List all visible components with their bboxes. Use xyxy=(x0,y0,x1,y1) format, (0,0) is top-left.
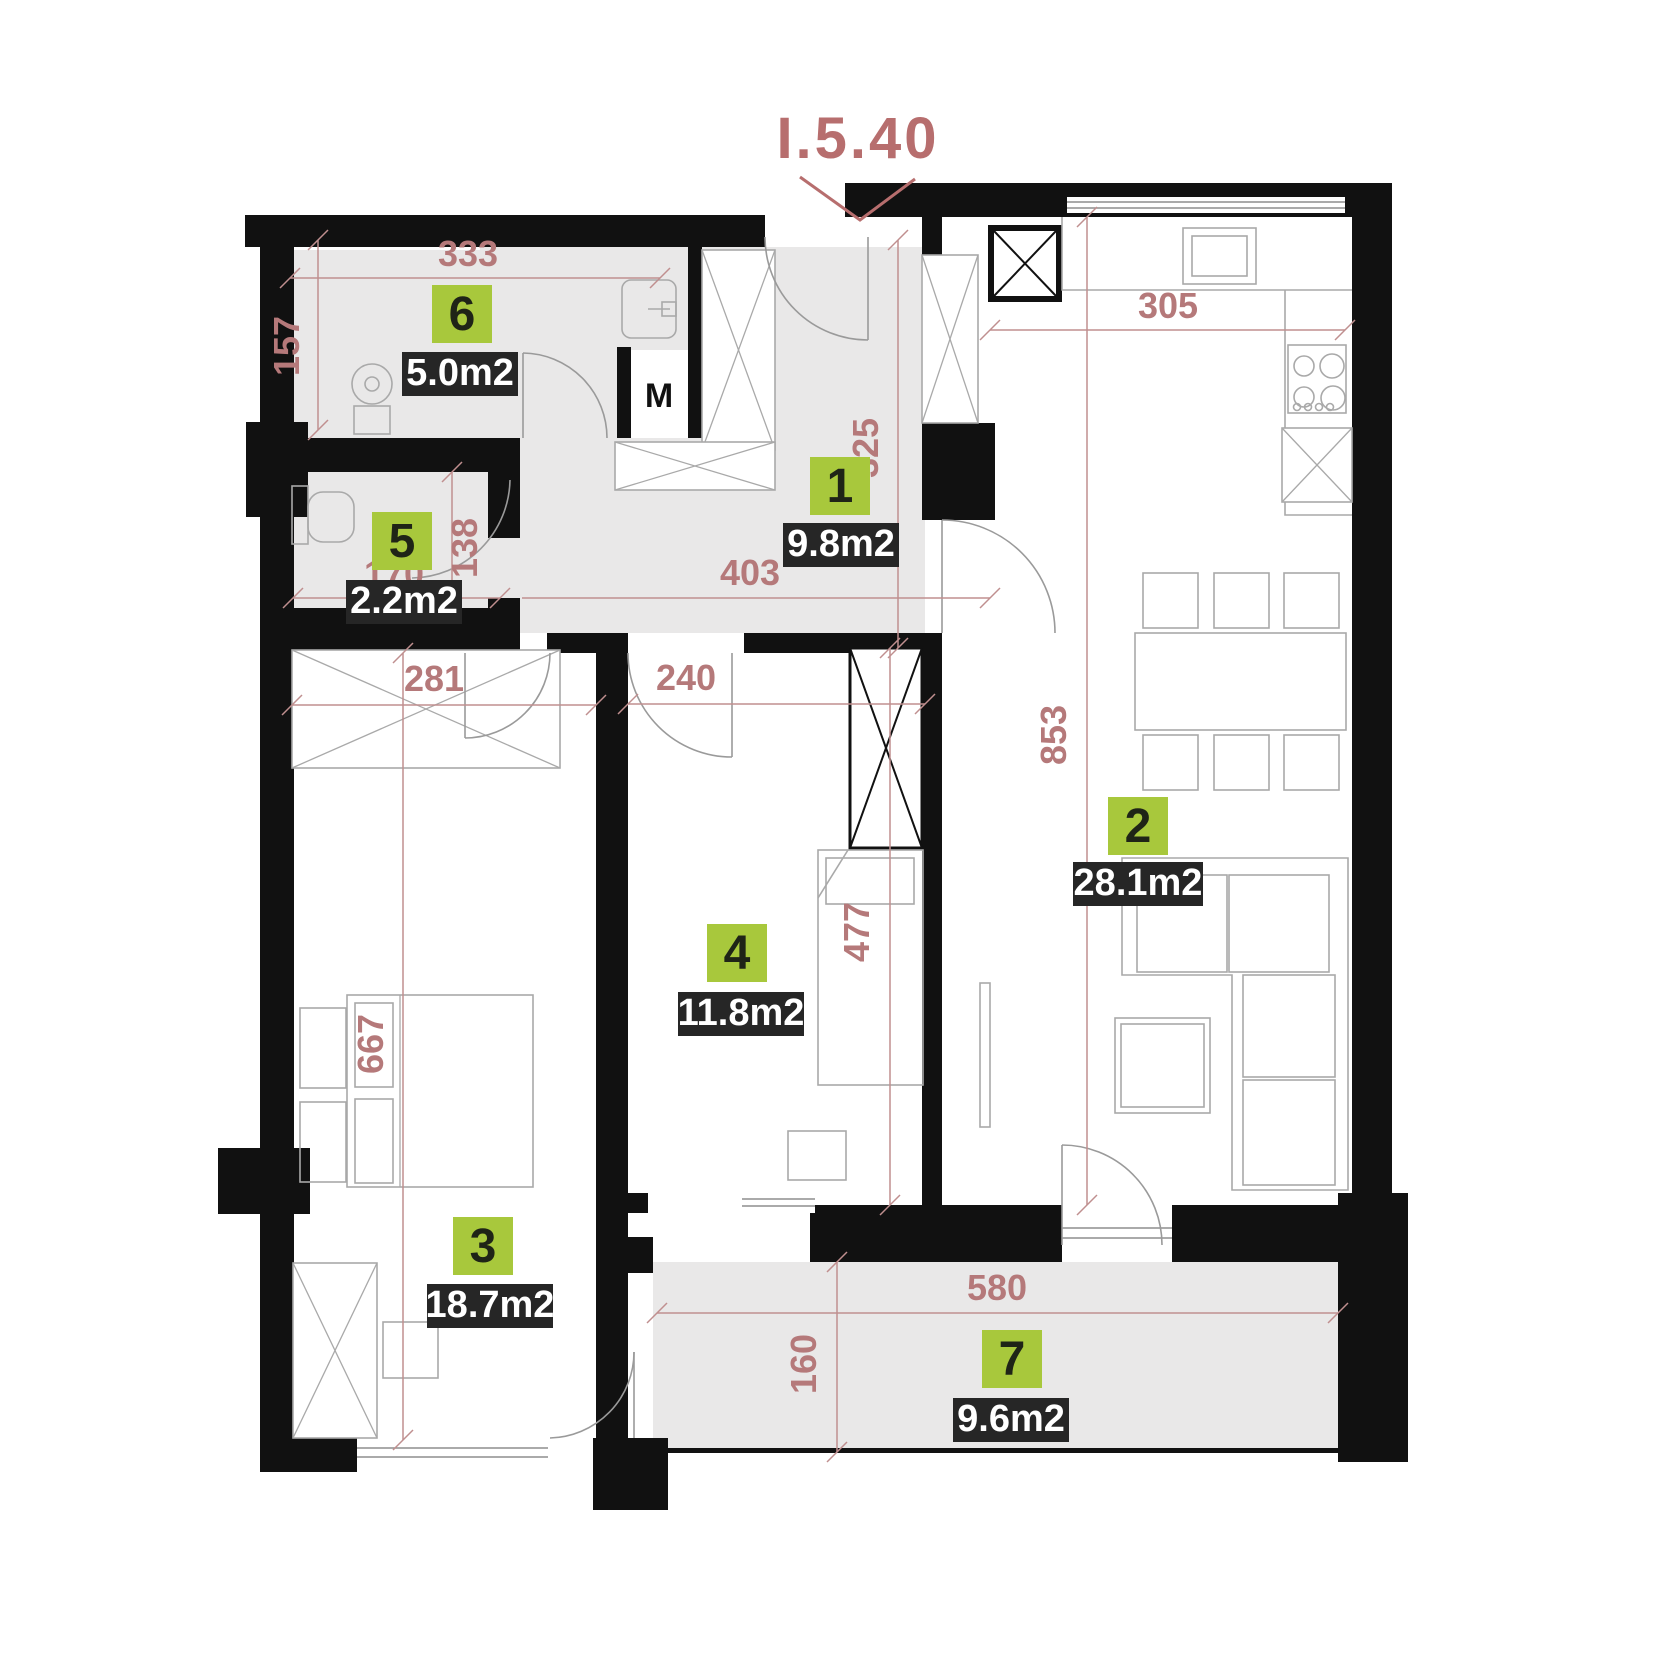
room-number: 1 xyxy=(827,460,854,513)
chair xyxy=(1284,735,1339,790)
utility-room-label: M xyxy=(645,377,673,415)
sofa-cushion xyxy=(1243,975,1335,1077)
wall xyxy=(922,217,942,257)
room-2-door-swing xyxy=(942,520,1055,633)
wall xyxy=(260,438,520,472)
room-3-badge: 3 18.7m2 xyxy=(426,1217,555,1328)
wall xyxy=(260,215,294,1472)
bed-single xyxy=(818,850,923,1085)
bed-pillow xyxy=(355,1099,393,1183)
wall xyxy=(628,1193,648,1213)
room-4-badge: 4 11.8m2 xyxy=(678,924,805,1036)
dimension-label: 281 xyxy=(404,658,464,699)
wall xyxy=(688,215,702,438)
room-number: 7 xyxy=(999,1333,1026,1386)
kitchen-sink xyxy=(1192,236,1247,276)
chair xyxy=(1143,573,1198,628)
sofa-cushion xyxy=(1229,875,1329,972)
cooktop-knob xyxy=(1316,404,1323,411)
dimension-label: 157 xyxy=(266,316,307,376)
wall xyxy=(922,633,942,1205)
window xyxy=(742,1193,815,1213)
cooktop-burner xyxy=(1320,354,1344,378)
wall xyxy=(1352,183,1392,1193)
wall xyxy=(488,472,520,538)
wall-pillar xyxy=(218,1148,310,1214)
room-area: 11.8m2 xyxy=(678,992,805,1034)
wall xyxy=(596,633,628,1438)
wall xyxy=(260,1438,358,1472)
dimension-label: 160 xyxy=(783,1334,824,1394)
dimension-label: 403 xyxy=(720,552,780,593)
coffee-table xyxy=(1121,1024,1204,1107)
wall-pillar xyxy=(922,423,995,520)
room-area: 9.6m2 xyxy=(957,1398,1065,1440)
wall xyxy=(810,1205,1062,1262)
chair xyxy=(1214,735,1269,790)
room-area: 2.2m2 xyxy=(350,580,458,622)
dimension-label: 667 xyxy=(350,1014,391,1074)
room-number: 6 xyxy=(449,288,476,341)
wall-pillar xyxy=(1338,1193,1408,1462)
desk xyxy=(383,1322,438,1378)
nightstand xyxy=(300,1008,346,1088)
sofa-cushion xyxy=(1243,1080,1335,1185)
wall xyxy=(617,347,631,438)
dimension-label: 853 xyxy=(1033,705,1074,765)
wall xyxy=(620,1237,653,1273)
dimension-label: 305 xyxy=(1138,285,1198,326)
chair xyxy=(1284,573,1339,628)
radiator xyxy=(980,983,990,1127)
room-area: 5.0m2 xyxy=(406,352,514,394)
dimension-label: 240 xyxy=(656,657,716,698)
room-number: 4 xyxy=(724,927,751,980)
wall xyxy=(1172,1205,1348,1262)
floors xyxy=(292,247,1338,1452)
room-number: 5 xyxy=(389,515,416,568)
window xyxy=(1067,197,1345,213)
room-area: 9.8m2 xyxy=(787,523,895,565)
unit-number: I.5.40 xyxy=(776,106,939,171)
balcony-edge xyxy=(653,1448,1338,1453)
dimension-label: 333 xyxy=(438,233,498,274)
cooktop-burner xyxy=(1294,356,1314,376)
dimension-label: 580 xyxy=(967,1267,1027,1308)
dining-table xyxy=(1135,633,1346,730)
dimension-label: 477 xyxy=(836,902,877,962)
room-number: 2 xyxy=(1125,800,1152,853)
room-area: 28.1m2 xyxy=(1074,862,1203,904)
chair xyxy=(1214,573,1269,628)
room-2-badge: 2 28.1m2 xyxy=(1073,797,1203,906)
wall xyxy=(245,215,765,247)
room-number: 3 xyxy=(470,1220,497,1273)
chair xyxy=(1143,735,1198,790)
coffee-table xyxy=(1115,1018,1210,1113)
room-area: 18.7m2 xyxy=(426,1284,555,1326)
floor-plan-page: 333 157 305 325 403 138 170 281 240 xyxy=(0,0,1659,1659)
floor-plan-svg: 333 157 305 325 403 138 170 281 240 xyxy=(0,0,1659,1659)
nightstand xyxy=(788,1131,846,1180)
dimension-label: 138 xyxy=(444,518,485,578)
window xyxy=(357,1438,548,1472)
